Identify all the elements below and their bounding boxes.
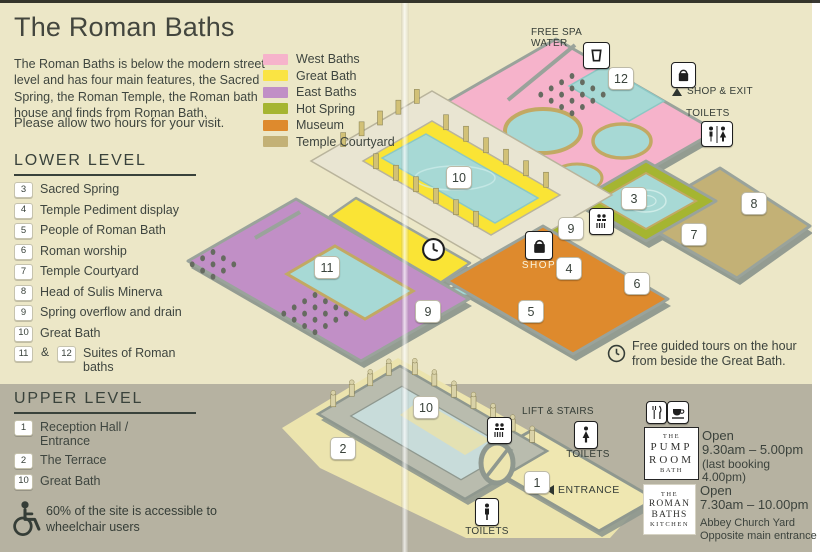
shop-bag-icon [525,231,553,260]
lower-level-heading: LOWER LEVEL [14,152,196,176]
stairs-lift-icon-lower [589,208,614,235]
circular-bath-small [593,124,651,158]
list-item: 7Temple Courtyard [14,264,196,280]
map-marker-9: 9 [558,217,584,240]
lift-stairs-label: LIFT & STAIRS [522,406,594,417]
legend-row: Great Bath [263,68,395,85]
legend-swatch-east-baths [263,87,288,98]
item-number-chip: 10 [14,474,33,490]
map-marker-upper-1: 1 [524,471,550,494]
list-item: 8Head of Sulis Minerva [14,285,196,301]
item-number-chip: 5 [14,223,33,239]
tours-note: Free guided tours on the hour from besid… [632,339,810,369]
list-item-dual: 11 & 12 Suites of Roman baths [14,346,196,375]
tour-clock-icon [421,237,446,267]
map-marker-9b: 9 [415,300,441,323]
toilets-top-label: TOILETS [686,108,730,119]
fold-crease [401,3,409,552]
shop-exit-row: SHOP & EXIT [672,86,753,97]
item-number-chip: 11 [14,346,33,362]
list-item: 6Roman worship [14,244,196,260]
legend-swatch-hot-spring [263,103,288,114]
map-marker-12: 12 [608,67,634,90]
pump-room-hours: Open 9.30am – 5.00pm (last booking 4.00p… [702,429,817,484]
map-marker-3: 3 [621,187,647,210]
brochure-page: The Roman Baths The Roman Baths is below… [0,0,820,558]
legend-row: West Baths [263,51,395,68]
shop-exit-label: SHOP & EXIT [687,86,753,97]
wheelchair-icon [8,500,42,536]
legend-row: Temple Courtyard [263,134,395,151]
item-number-chip: 9 [14,305,33,321]
item-number-chip: 6 [14,244,33,260]
item-number-chip: 8 [14,285,33,301]
list-item: 4Temple Pediment display [14,203,196,219]
legend-row: Museum [263,117,395,134]
upper-level-heading: UPPER LEVEL [14,390,196,414]
toilets-top-icon [701,121,733,147]
legend-row: Hot Spring [263,101,395,118]
item-number-chip: 1 [14,420,33,436]
list-item: 5People of Roman Bath [14,223,196,239]
entrance-label: ENTRANCE [558,484,620,496]
item-number-chip: 2 [14,453,33,469]
upper-level-panel: UPPER LEVEL 1Reception Hall / Entrance 2… [14,390,196,490]
toilets-bottom-label: TOILETS [452,526,522,537]
map-marker-8: 8 [741,192,767,215]
map-marker-7: 7 [681,223,707,246]
item-number-chip: 7 [14,264,33,280]
item-number-chip: 12 [57,346,76,362]
list-item: 1Reception Hall / Entrance [14,420,196,449]
upper-level-list: 1Reception Hall / Entrance 2The Terrace … [14,420,196,490]
toilets-bottom-icon [475,498,499,526]
legend-swatch-museum [263,120,288,131]
list-item: 3Sacred Spring [14,182,196,198]
map-marker-upper-10: 10 [413,396,439,419]
list-item: 10Great Bath [14,474,196,490]
map-marker-upper-2: 2 [330,437,356,460]
roman-baths-kitchen-logo: THE ROMAN BATHS KITCHEN [643,484,696,535]
item-number-chip: 4 [14,203,33,219]
page-title: The Roman Baths [14,12,235,43]
shop-exit-arrow-icon [672,88,682,96]
page-edge-top [0,0,820,3]
legend-row: East Baths [263,84,395,101]
legend-swatch-west-baths [263,54,288,65]
item-number-chip: 3 [14,182,33,198]
map-legend: West Baths Great Bath East Baths Hot Spr… [263,51,395,150]
accessibility-note: 60% of the site is accessible to wheelch… [46,504,222,535]
kitchen-hours: Open 7.30am – 10.00pm Abbey Church Yard … [700,484,818,543]
lift-icon [487,417,512,444]
page-edge-bottom [0,552,820,558]
map-marker-10: 10 [446,166,472,189]
legend-swatch-temple-courtyard [263,136,288,147]
legend-swatch-great-bath [263,70,288,81]
map-marker-6: 6 [624,272,650,295]
shop-exit-bag-icon [671,62,696,88]
cafe-icon [667,401,689,424]
toilets-right-label: TOILETS [558,449,618,460]
lower-level-list: 3Sacred Spring 4Temple Pediment display … [14,182,196,375]
spa-water-cup-icon [583,42,610,69]
pump-room-logo: THE PUMP ROOM BATH [644,427,699,480]
intro-text: The Roman Baths is below the modern stre… [14,56,268,121]
list-item: 9Spring overflow and drain [14,305,196,321]
visit-note: Please allow two hours for your visit. [14,115,268,130]
map-marker-11: 11 [314,256,340,279]
tours-clock-icon [607,344,626,368]
list-item: 2The Terrace [14,453,196,469]
list-item: 10Great Bath [14,326,196,342]
item-number-chip: 10 [14,326,33,342]
entrance-row: ENTRANCE [546,484,620,496]
map-marker-4: 4 [556,257,582,280]
lower-level-panel: LOWER LEVEL 3Sacred Spring 4Temple Pedim… [14,152,196,375]
toilets-right-icon [574,421,598,449]
restaurant-icon [646,401,667,424]
map-marker-5: 5 [518,300,544,323]
